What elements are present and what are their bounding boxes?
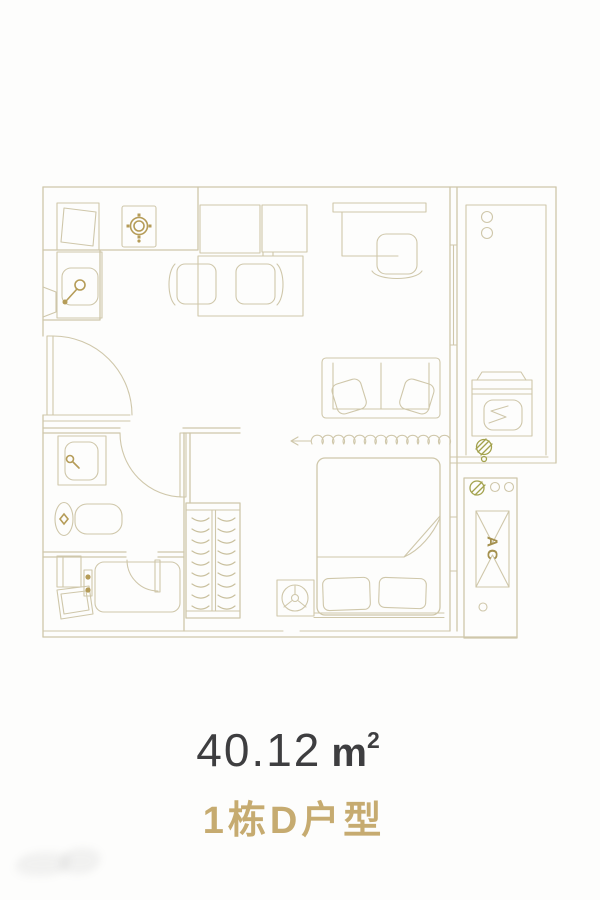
sofa	[322, 358, 440, 418]
wall-cabinet	[262, 205, 307, 252]
stove-icon	[122, 206, 156, 247]
area-value: 40.12	[196, 724, 321, 776]
dining-chair	[169, 264, 216, 305]
floor-plan-image: AC 40.12m2 1栋D户型	[0, 0, 600, 900]
ac-outdoor-unit-icon: AC	[476, 511, 509, 587]
floor-drain-icon	[476, 439, 492, 462]
hangers	[192, 518, 235, 609]
pillow	[378, 577, 426, 609]
cushion	[330, 377, 368, 415]
kitchen-sink-icon	[57, 252, 102, 318]
unit-type-title: 1栋D户型	[0, 789, 594, 844]
bedside-table	[277, 580, 314, 616]
area-exponent: 2	[367, 727, 380, 753]
curtain-divider	[291, 435, 451, 445]
dining-chair	[236, 264, 283, 305]
area-label: 40.12m2	[0, 723, 588, 777]
entry-door	[47, 336, 132, 415]
shower-door	[127, 560, 160, 592]
watermark	[16, 846, 104, 882]
cushion	[398, 377, 436, 415]
shower-enclosure	[95, 562, 180, 612]
dining-table	[198, 256, 303, 316]
bedroom	[277, 458, 444, 618]
shower-shelf	[57, 556, 81, 587]
wall-cabinet	[200, 205, 260, 253]
ac-platform: AC	[464, 478, 517, 638]
bathroom	[55, 436, 180, 619]
area-unit: m2	[331, 731, 379, 775]
pipe-duct	[43, 287, 56, 317]
balcony	[472, 212, 532, 462]
dining-area	[169, 205, 307, 316]
vanity-sink-icon	[58, 436, 106, 485]
kitchen	[57, 203, 156, 318]
walls	[43, 187, 556, 637]
ac-unit-label: AC	[484, 536, 501, 562]
pillow	[322, 577, 370, 611]
blanket-fold	[404, 516, 440, 557]
washing-machine-icon	[472, 372, 532, 436]
wardrobe	[186, 503, 240, 618]
refrigerator-icon	[57, 203, 99, 250]
desk	[333, 203, 426, 212]
toilet-icon	[55, 503, 122, 536]
desk-area	[333, 203, 426, 279]
shower-room	[57, 556, 180, 619]
floor-drain-icon	[470, 481, 485, 495]
bathroom-door	[120, 433, 186, 497]
